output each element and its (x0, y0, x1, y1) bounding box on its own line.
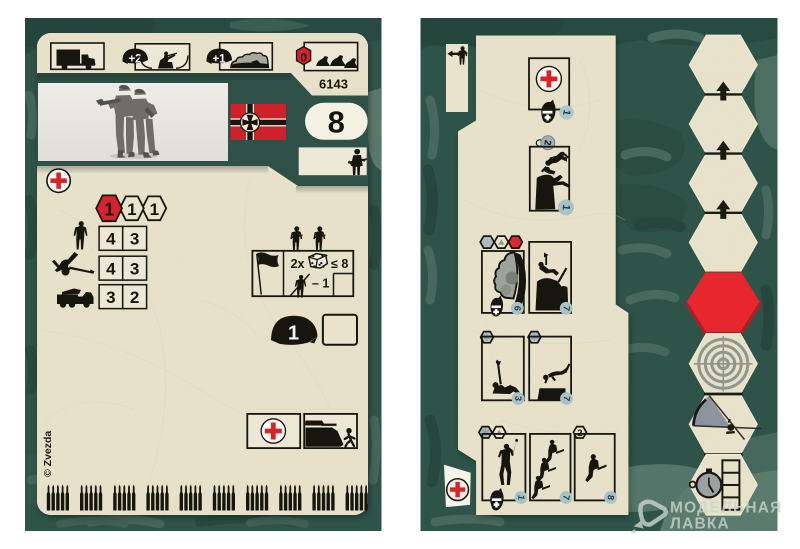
svg-text:3: 3 (130, 260, 139, 279)
svg-text:+1: +1 (212, 54, 226, 66)
svg-text:4: 4 (106, 230, 116, 249)
svg-text:1: 1 (104, 199, 114, 219)
svg-text:– 1: – 1 (312, 277, 329, 291)
svg-text:3: 3 (106, 288, 115, 307)
svg-text:1: 1 (288, 323, 299, 345)
svg-text:ЛАВКА: ЛАВКА (670, 516, 730, 533)
svg-text:3: 3 (130, 230, 139, 249)
svg-text:1: 1 (127, 200, 136, 219)
svg-text:2: 2 (130, 288, 139, 307)
svg-text:МОДЕЛЬНАЯ: МОДЕЛЬНАЯ (670, 500, 783, 517)
svg-text:≤ 8: ≤ 8 (331, 257, 348, 271)
svg-text:8: 8 (328, 105, 345, 140)
svg-text:© Zvezda: © Zvezda (42, 431, 54, 477)
svg-text:2x: 2x (291, 257, 305, 271)
svg-text:4: 4 (106, 260, 116, 279)
svg-text:1: 1 (150, 200, 159, 219)
svg-text:+2: +2 (128, 54, 141, 66)
svg-text:6143: 6143 (319, 77, 348, 92)
svg-text:0: 0 (300, 51, 307, 65)
